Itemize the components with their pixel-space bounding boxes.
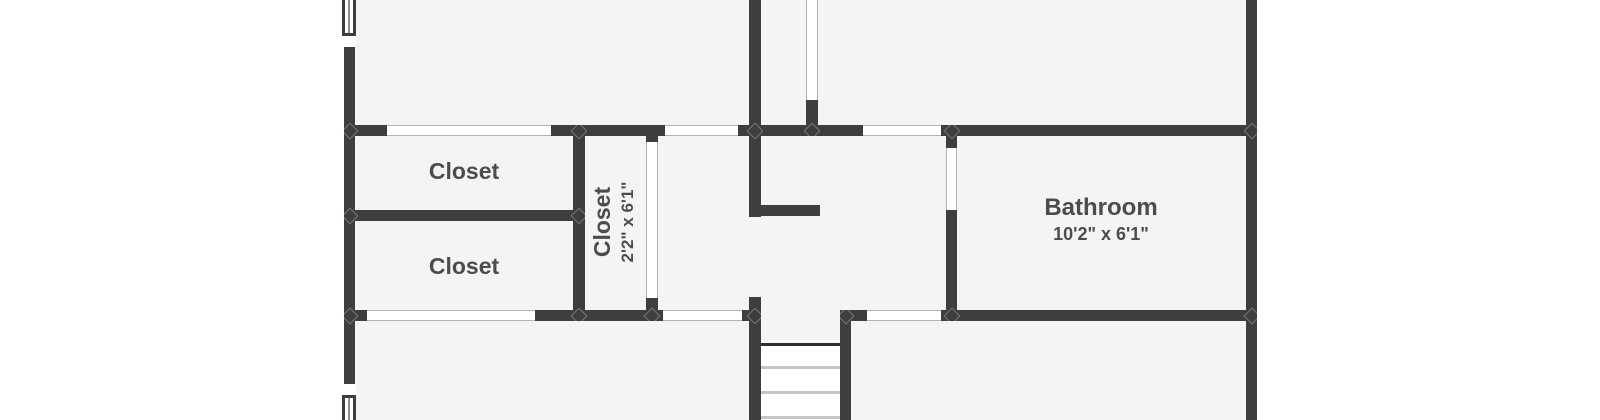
- room-dimensions: 10'2" x 6'1": [1044, 221, 1157, 247]
- stair-tread: [761, 366, 840, 369]
- staircase: [761, 346, 840, 420]
- wall-center-vertical: [749, 0, 761, 217]
- window-sill-line: [342, 33, 356, 36]
- door-opening-bathroom: [946, 148, 957, 210]
- door-opening-bottom-right-room: [867, 310, 941, 321]
- window-frame-line: [342, 0, 345, 33]
- door-opening-hallway-top: [665, 125, 738, 136]
- room-label-closet-top: Closet: [429, 158, 499, 184]
- exterior-wall-right: [1246, 0, 1257, 420]
- window-frame-line: [353, 0, 356, 33]
- room-name: Bathroom: [1044, 195, 1157, 221]
- wall-closet-divider-vertical: [573, 125, 585, 321]
- window-pane-line: [348, 398, 350, 420]
- wall-closet-divider-horizontal: [344, 210, 585, 221]
- stair-tread: [761, 343, 840, 346]
- door-opening-bottom-hall: [663, 310, 742, 321]
- room-name: Closet: [590, 182, 615, 263]
- stair-tread: [761, 391, 840, 394]
- door-opening-hall-closet: [646, 142, 658, 298]
- room-label-bathroom: Bathroom 10'2" x 6'1": [1044, 195, 1157, 247]
- door-opening-top-middle: [806, 0, 818, 100]
- room-name: Closet: [429, 158, 499, 184]
- door-opening-top-right-room: [863, 125, 941, 136]
- stair-tread: [761, 416, 840, 419]
- room-label-closet-bottom: Closet: [429, 253, 499, 279]
- wall-stair-right: [840, 310, 851, 420]
- wall-stair-left: [749, 297, 761, 420]
- wall-stub-horizontal: [761, 205, 820, 216]
- window-frame-line: [353, 398, 356, 420]
- window-left-bottom: [342, 384, 356, 420]
- room-label-closet-hall: Closet 2'2" x 6'1": [590, 182, 640, 263]
- door-opening-bottom-left-room: [367, 310, 535, 321]
- window-pane-line: [348, 0, 350, 33]
- room-name: Closet: [429, 253, 499, 279]
- window-frame-line: [342, 398, 345, 420]
- floor-plan-canvas: Closet Closet Closet 2'2" x 6'1" Bathroo…: [0, 0, 1600, 420]
- room-dimensions: 2'2" x 6'1": [615, 182, 640, 263]
- door-opening-closet-top: [387, 125, 551, 136]
- window-left-top: [342, 0, 356, 47]
